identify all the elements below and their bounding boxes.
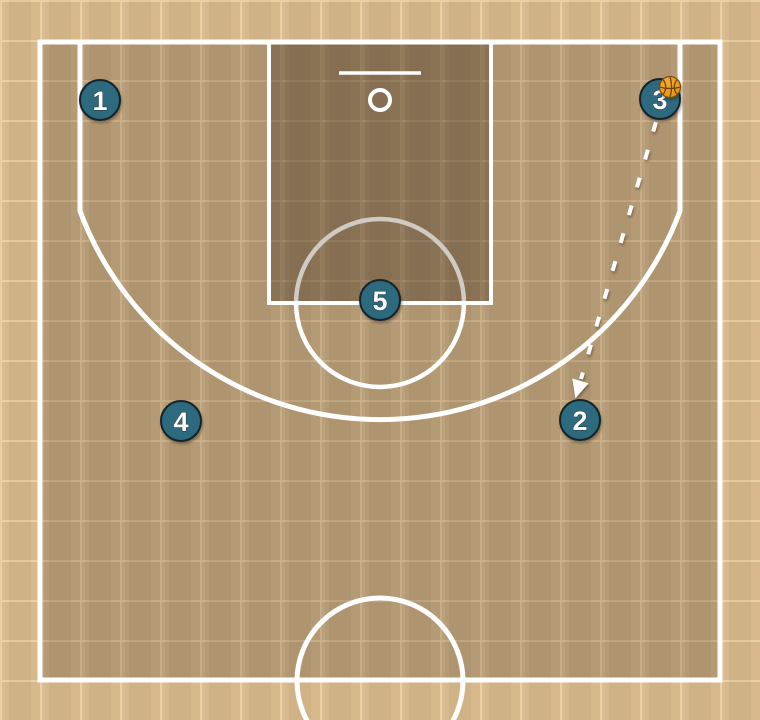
basketball-icon[interactable] (660, 77, 681, 98)
player-marker-1[interactable]: 1 (80, 80, 120, 120)
ball-layer[interactable] (660, 77, 681, 98)
player-number: 2 (572, 406, 587, 436)
player-marker-4[interactable]: 4 (161, 401, 201, 441)
player-number: 5 (372, 286, 387, 316)
play-canvas[interactable]: 12345 (0, 0, 760, 720)
player-marker-5[interactable]: 5 (360, 280, 400, 320)
player-marker-2[interactable]: 2 (560, 400, 600, 440)
player-number: 4 (173, 407, 188, 437)
paint-area (269, 42, 491, 303)
player-number: 1 (92, 86, 107, 116)
half-court-diagram: 12345 (0, 0, 760, 720)
